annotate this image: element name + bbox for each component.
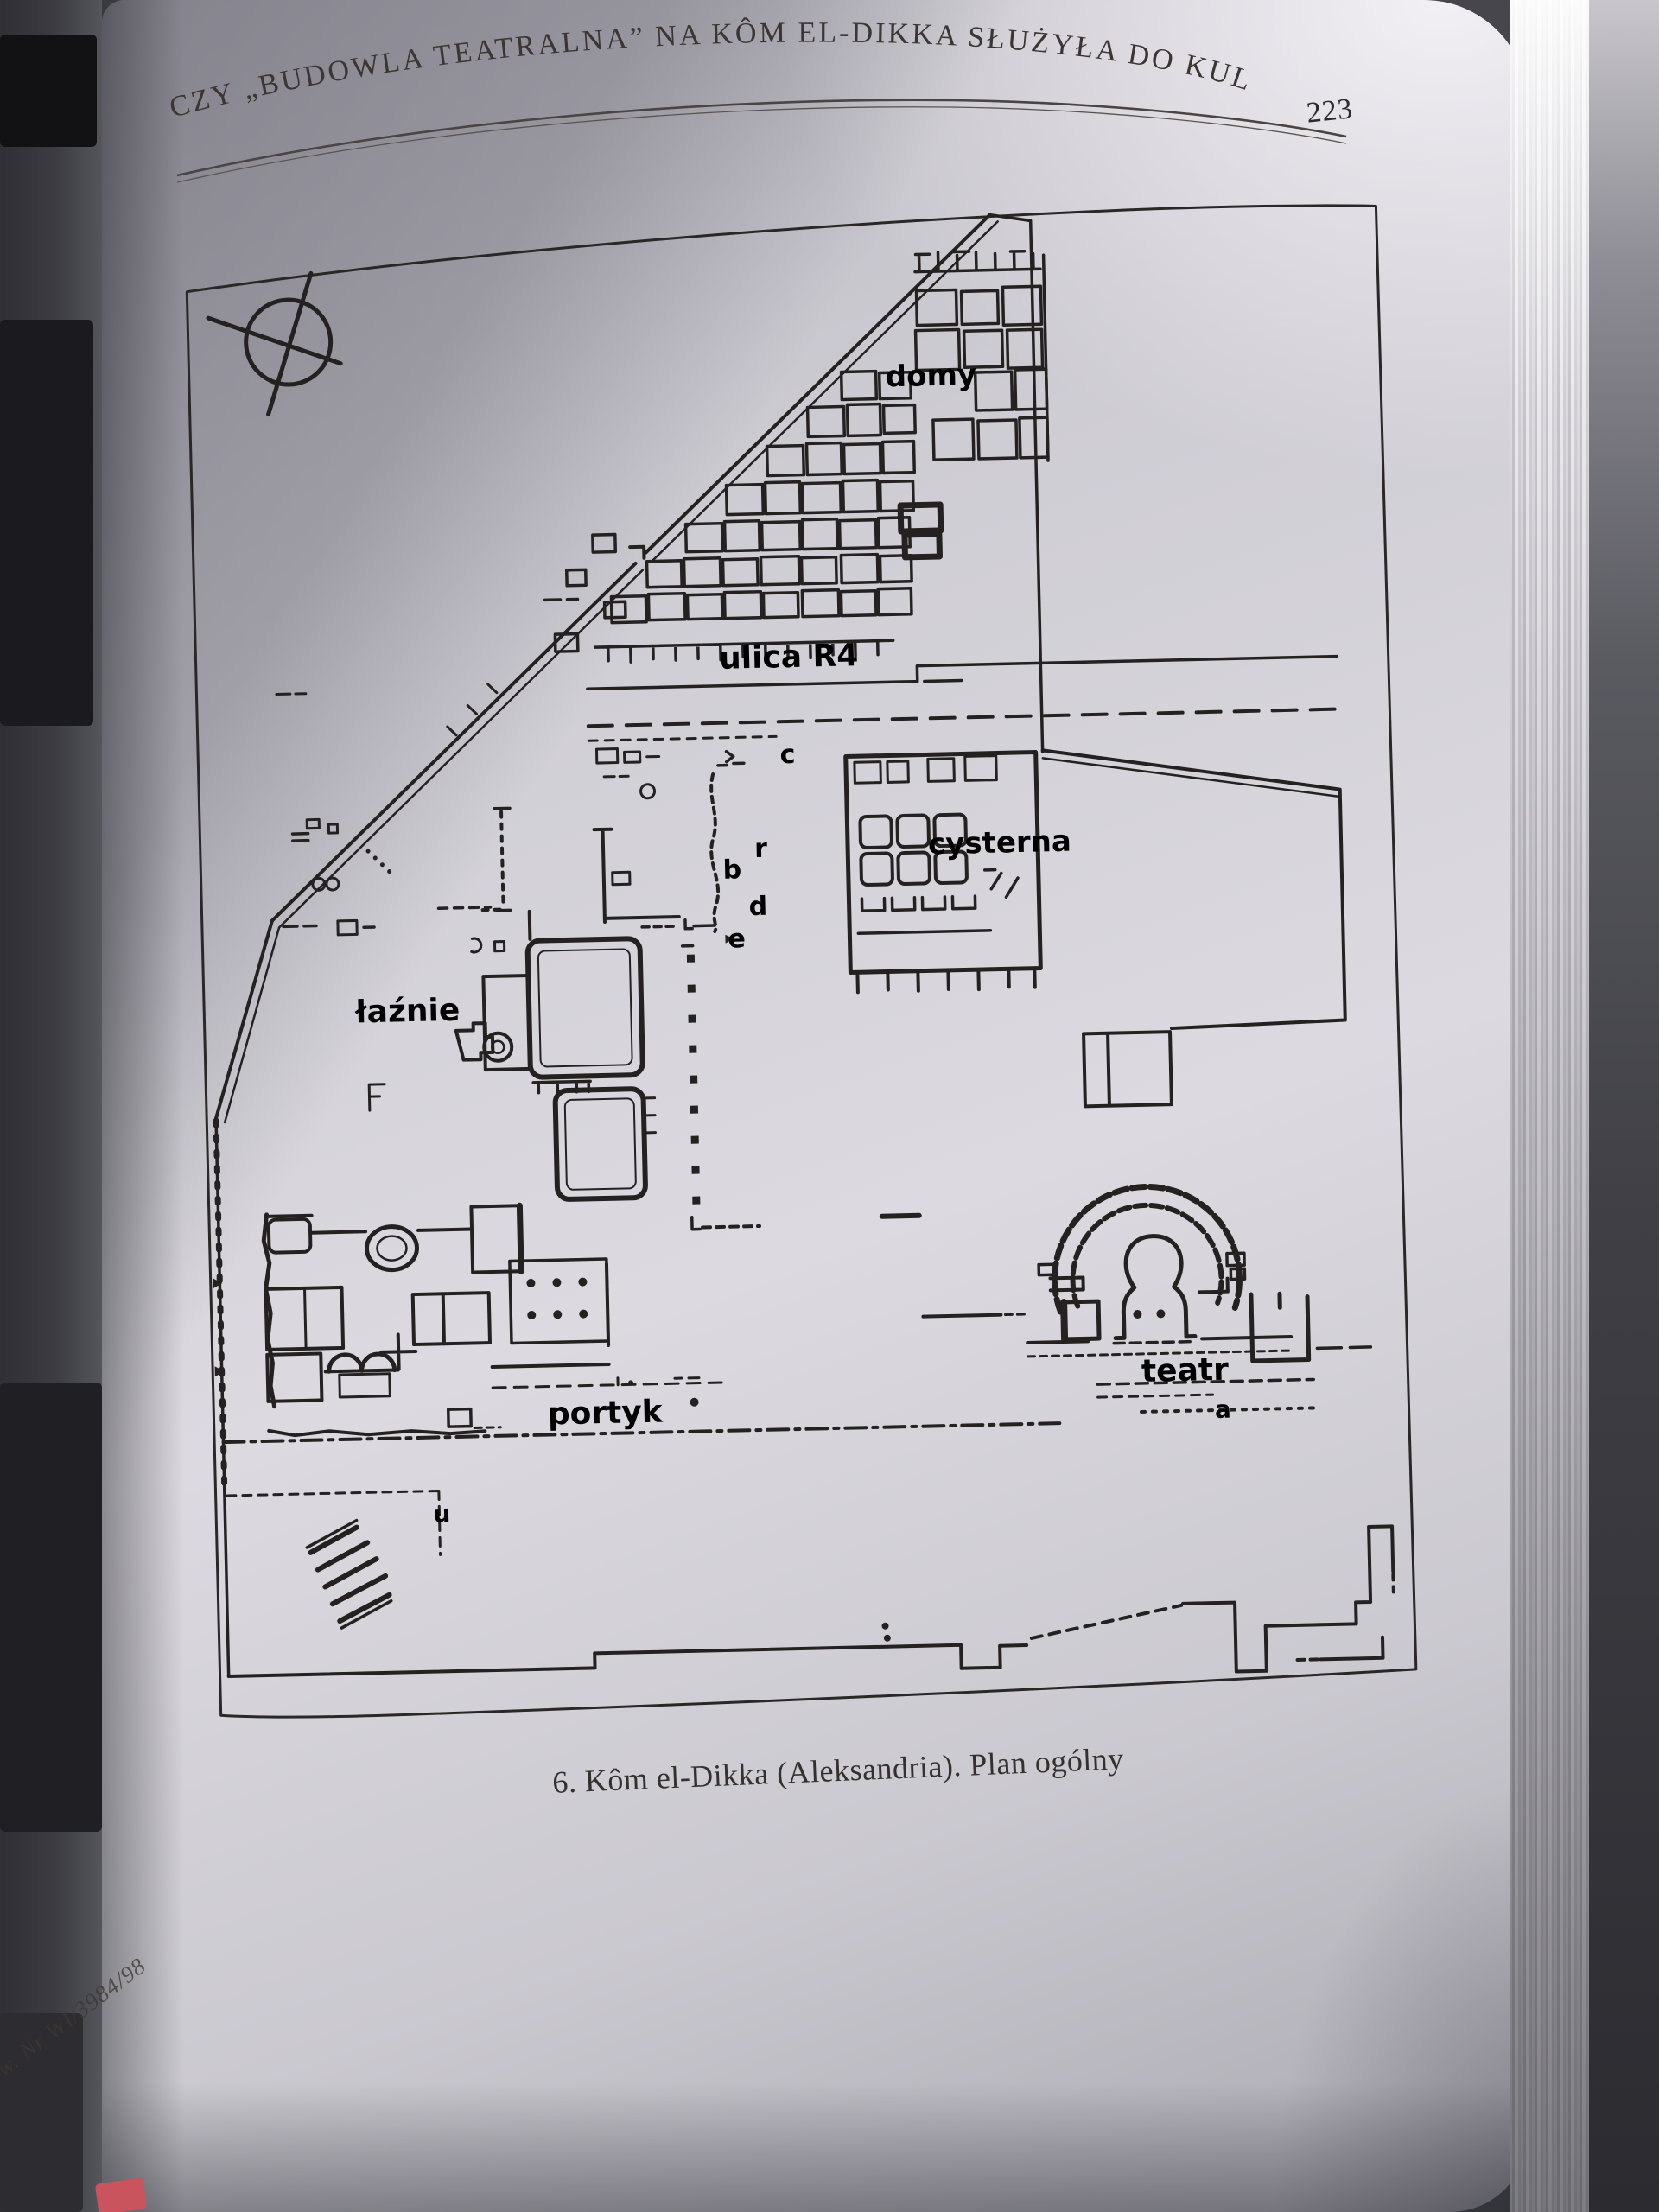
label-teatr: teatr	[1141, 1352, 1229, 1389]
site-boundary	[196, 207, 1360, 1676]
theatre-dots	[1133, 1309, 1165, 1319]
houses-cluster	[540, 370, 944, 664]
dark-photo-fragment	[0, 1382, 102, 1832]
previous-page-edge	[0, 0, 102, 2212]
header-rule	[177, 100, 1346, 175]
letter-b: b	[722, 855, 741, 885]
letter-u: u	[433, 1499, 451, 1528]
theatre	[920, 1182, 1371, 1369]
letter-a: a	[1215, 1395, 1232, 1424]
houses-grid	[914, 250, 1048, 463]
dark-photo-fragment	[0, 320, 93, 726]
background	[1589, 0, 1659, 2212]
letter-c: c	[779, 740, 796, 770]
bookmark-ribbon	[95, 2177, 147, 2212]
label-portyk: portyk	[547, 1395, 664, 1433]
label-domy: domy	[885, 358, 976, 394]
label-laznie: łaźnie	[354, 993, 461, 1031]
plan-drawing	[189, 207, 1395, 1694]
letter-d: d	[748, 892, 767, 922]
dark-photo-fragment	[0, 35, 97, 147]
letter-r: r	[754, 834, 768, 864]
bottom-dots	[881, 1623, 890, 1642]
label-ulica-r4: ulica R4	[719, 638, 859, 677]
pillar-dots	[526, 1277, 588, 1319]
south-boundary	[226, 1526, 1395, 1694]
running-head: CZY „BUDOWLA TEATRALNA” NA KÔM EL-DIKKA …	[130, 7, 1426, 206]
dash-row	[702, 1226, 760, 1227]
book-photo: CZY „BUDOWLA TEATRALNA” NA KÔM EL-DIKKA …	[0, 0, 1659, 2212]
street-r4	[587, 657, 1338, 741]
page-number: 223	[1305, 92, 1355, 130]
header-rule-thin	[177, 107, 1346, 182]
lone-wall	[882, 1216, 919, 1217]
north-arrow-icon	[207, 273, 342, 416]
stairs	[227, 1491, 442, 1630]
fore-edge-pages	[1510, 0, 1589, 2212]
small-dots	[365, 849, 391, 874]
cistern	[846, 753, 1041, 993]
plan-svg: domy ulica R4 cysterna łaźnie portyk tea…	[149, 178, 1436, 1739]
column-dots	[686, 935, 740, 1205]
figure-plan: domy ulica R4 cysterna łaźnie portyk tea…	[149, 178, 1436, 1739]
label-cysterna: cysterna	[928, 824, 1072, 862]
letter-e: e	[728, 924, 746, 954]
